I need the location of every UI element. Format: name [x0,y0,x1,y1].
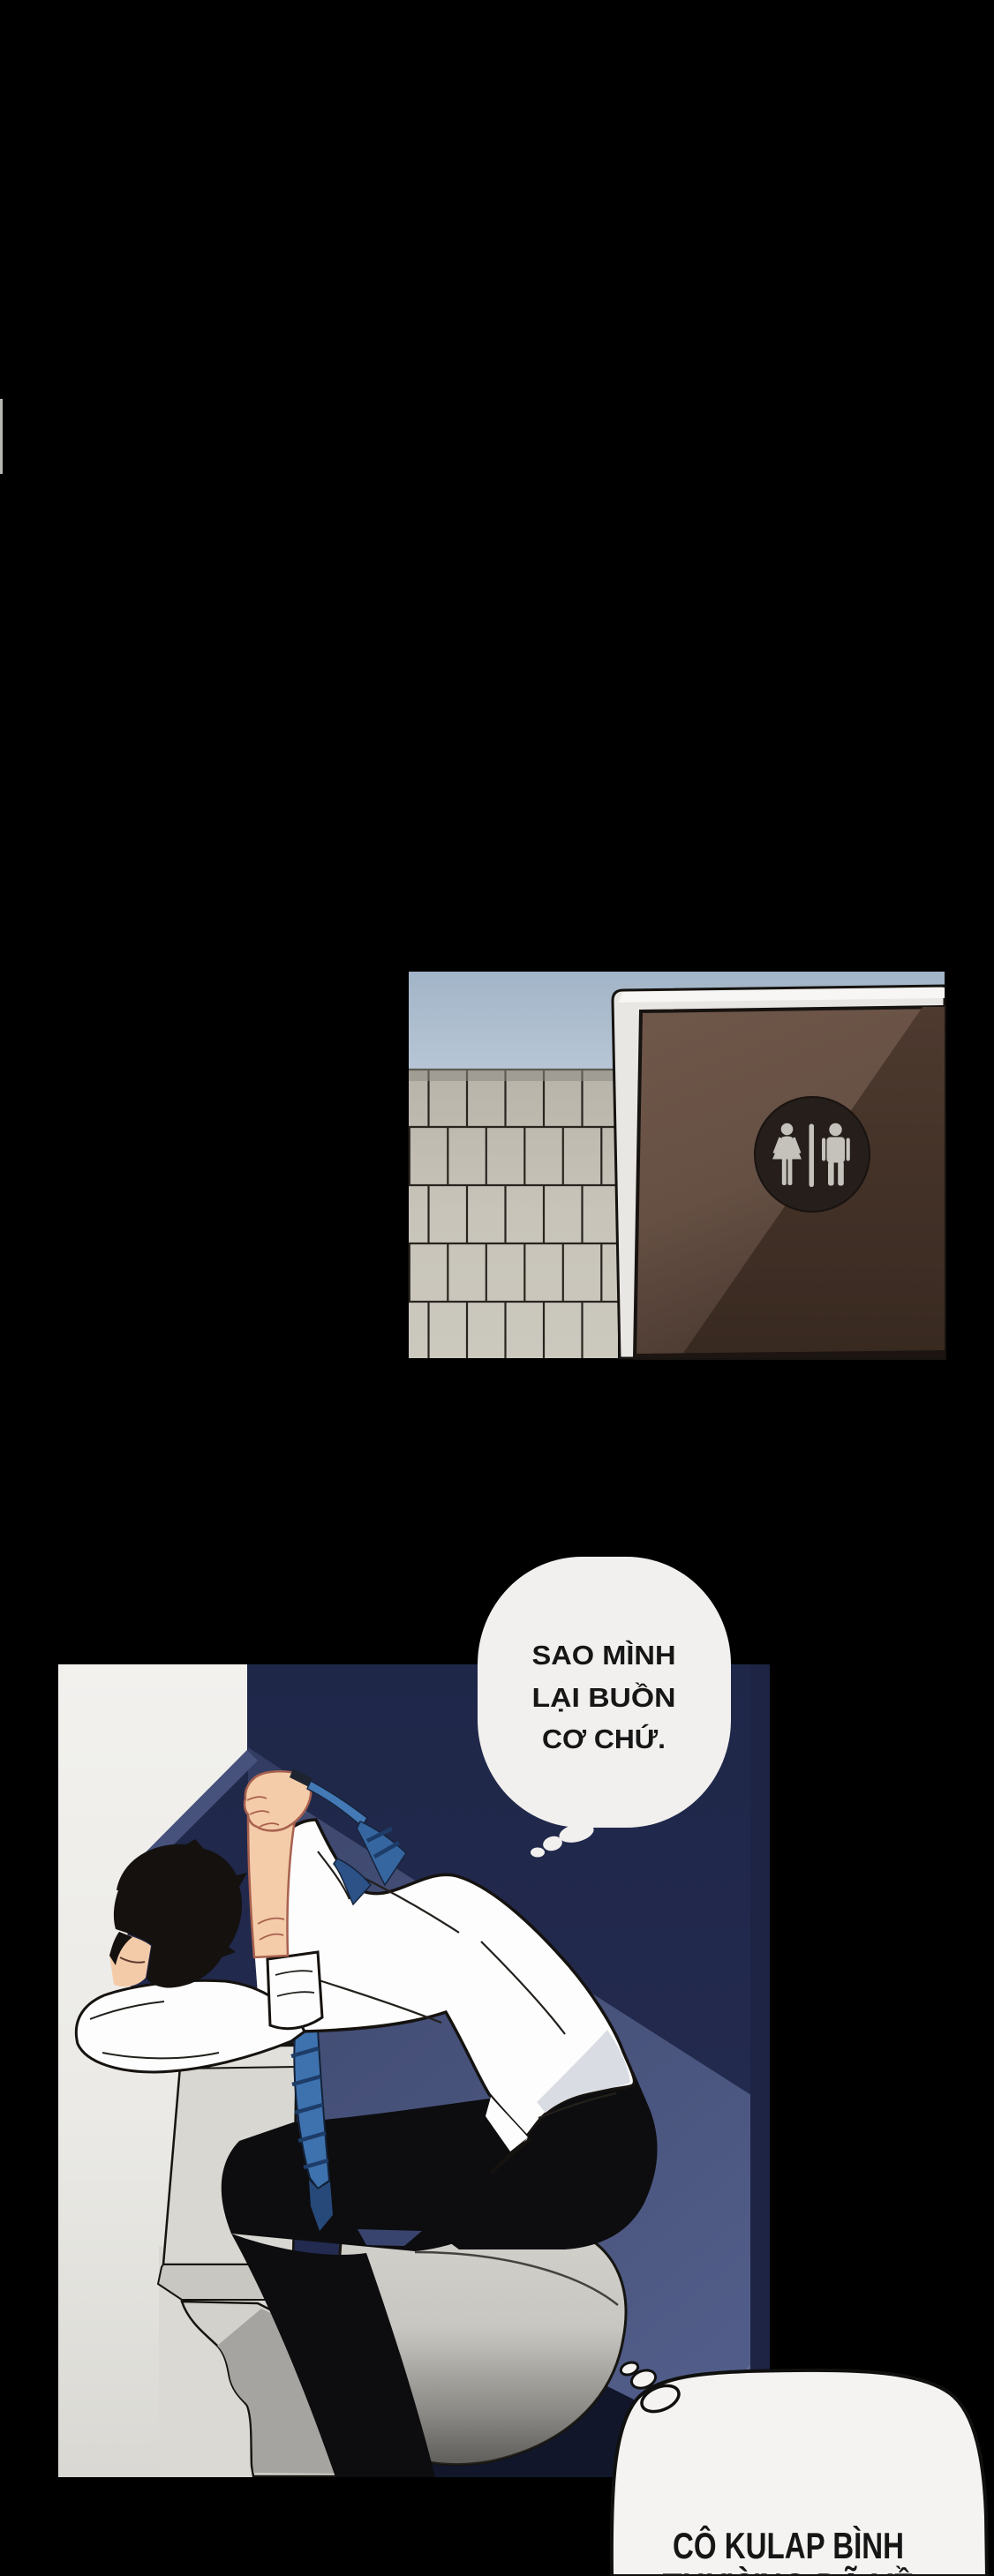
svg-text:THƯỜNG ĐÃ VỀ: THƯỜNG ĐÃ VỀ [663,2565,915,2576]
svg-text:CƠ CHỨ.: CƠ CHỨ. [542,1723,666,1754]
svg-text:SAO MÌNH: SAO MÌNH [532,1640,676,1671]
svg-text:LẠI BUỒN: LẠI BUỒN [532,1681,676,1713]
svg-text:CÔ KULAP BÌNH: CÔ KULAP BÌNH [673,2524,904,2566]
